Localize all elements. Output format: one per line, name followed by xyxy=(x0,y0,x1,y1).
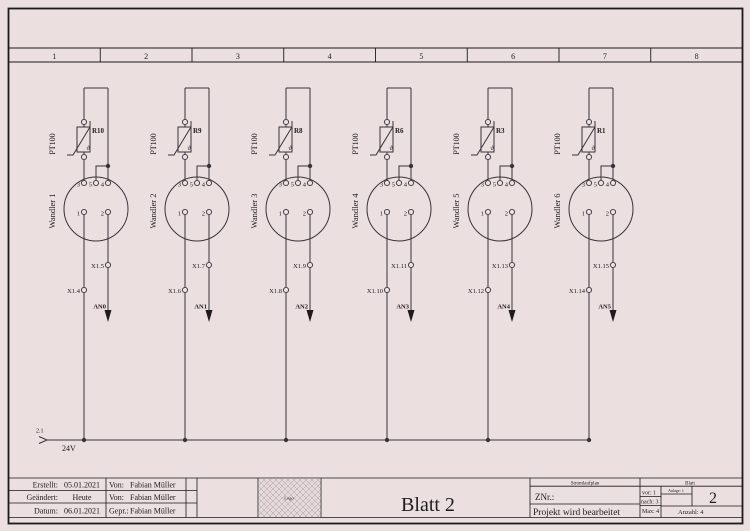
ruler-cell: 4 xyxy=(328,52,332,61)
converter-symbol[interactable] xyxy=(367,177,431,241)
terminal-clamp[interactable] xyxy=(509,262,514,267)
connection-node[interactable] xyxy=(586,119,591,124)
row-by-label: Von: xyxy=(109,481,124,490)
junction-dot xyxy=(207,164,211,168)
anlage-note: Anlage: 1 xyxy=(668,488,684,493)
channel-6: PT100Wandler 6R1ϑ35412X1.14X1.15AN5 xyxy=(552,88,633,442)
terminal-clamp[interactable] xyxy=(586,287,591,292)
title-block-row: Geändert:HeuteVon:Fabian Müller xyxy=(26,493,175,502)
connection-node[interactable] xyxy=(586,154,591,159)
converter-terminal[interactable] xyxy=(105,209,110,214)
terminal-number: 1 xyxy=(380,211,383,218)
row-value: Heute xyxy=(72,493,92,502)
converter-symbol[interactable] xyxy=(468,177,532,241)
pt100-label: PT100 xyxy=(149,133,158,154)
terminal-clamp[interactable] xyxy=(182,287,187,292)
sheet-count: Anzahl: 4 xyxy=(678,509,704,516)
converter-terminal[interactable] xyxy=(182,180,187,185)
resistor-label: R3 xyxy=(496,127,505,135)
theta-symbol: ϑ xyxy=(491,146,494,152)
terminal-clamp[interactable] xyxy=(610,262,615,267)
terminal-number: 2 xyxy=(505,211,508,218)
terminal-number: 5 xyxy=(392,182,395,189)
sheet-title: Blatt 2 xyxy=(401,494,455,516)
resistor-label: R9 xyxy=(193,127,202,135)
pt100-label: PT100 xyxy=(48,133,57,154)
row-by-value: Fabian Müller xyxy=(130,493,176,502)
terminal-number: 3 xyxy=(77,182,80,189)
resistor-label: R8 xyxy=(294,127,303,135)
ruler-cell: 7 xyxy=(603,52,607,61)
column-ruler xyxy=(9,48,743,62)
project-status: Projekt wird bearbeitet xyxy=(533,508,620,518)
logo-text: Logo xyxy=(284,496,294,501)
converter-symbol[interactable] xyxy=(569,177,633,241)
converter-terminal[interactable] xyxy=(509,180,514,185)
converter-terminal[interactable] xyxy=(396,180,401,185)
resistor-label: R1 xyxy=(597,127,606,135)
converter-terminal[interactable] xyxy=(81,180,86,185)
znr-label: ZNr.: xyxy=(535,492,554,502)
theta-symbol: ϑ xyxy=(289,146,292,152)
junction-dot xyxy=(308,164,312,168)
converter-label: Wandler 4 xyxy=(350,193,360,229)
converter-terminal[interactable] xyxy=(586,209,591,214)
output-label: AN5 xyxy=(598,304,611,311)
converter-terminal[interactable] xyxy=(307,180,312,185)
output-label: AN2 xyxy=(295,304,308,311)
row-label: Geändert: xyxy=(26,493,58,502)
channel-3: PT100Wandler 3R8ϑ35412X1.8X1.9AN2 xyxy=(249,88,330,442)
converter-terminal[interactable] xyxy=(194,180,199,185)
terminal-number: 1 xyxy=(279,211,282,218)
output-label: AN4 xyxy=(497,304,510,311)
converter-label: Wandler 3 xyxy=(249,194,259,229)
terminal-clamp[interactable] xyxy=(307,262,312,267)
terminal-number: 3 xyxy=(380,182,383,189)
connection-node[interactable] xyxy=(283,154,288,159)
output-label: AN1 xyxy=(194,304,207,311)
converter-terminal[interactable] xyxy=(509,209,514,214)
terminal-number: 1 xyxy=(77,211,80,218)
pt100-label: PT100 xyxy=(452,133,461,154)
output-label: AN0 xyxy=(93,304,106,311)
row-by-label: Von: xyxy=(109,493,124,502)
converter-terminal[interactable] xyxy=(307,209,312,214)
row-label: Datum: xyxy=(34,507,58,516)
bus-reference-label: 2.1 xyxy=(36,429,44,435)
clamp-label: X1.9 xyxy=(293,263,306,270)
converter-terminal[interactable] xyxy=(384,180,389,185)
connection-node[interactable] xyxy=(384,119,389,124)
theta-symbol: ϑ xyxy=(188,146,191,152)
junction-dot xyxy=(611,164,615,168)
terminal-number: 2 xyxy=(303,211,306,218)
clamp-label: X1.11 xyxy=(391,263,407,270)
converter-symbol[interactable] xyxy=(165,177,229,241)
converter-terminal[interactable] xyxy=(384,209,389,214)
resistor-label: R10 xyxy=(92,127,105,135)
converter-terminal[interactable] xyxy=(182,209,187,214)
converter-terminal[interactable] xyxy=(586,180,591,185)
resistor-label: R6 xyxy=(395,127,404,135)
connection-node[interactable] xyxy=(182,154,187,159)
clamp-label: X1.15 xyxy=(593,263,609,270)
clamp-label: X1.5 xyxy=(91,263,104,270)
converter-terminal[interactable] xyxy=(283,209,288,214)
analog-output-arrow-icon[interactable] xyxy=(408,310,415,322)
output-label: AN3 xyxy=(396,304,409,311)
title-block-row: Datum:06.01.2021Gepr.:Fabian Müller xyxy=(34,507,176,516)
converter-terminal[interactable] xyxy=(485,180,490,185)
junction-dot xyxy=(106,164,110,168)
converter-terminal[interactable] xyxy=(206,180,211,185)
terminal-clamp[interactable] xyxy=(408,262,413,267)
doc-type-header: Stromlaufplan xyxy=(571,481,600,486)
converter-terminal[interactable] xyxy=(610,209,615,214)
channel-5: PT100Wandler 5R3ϑ35412X1.12X1.13AN4 xyxy=(451,88,532,442)
terminal-number: 5 xyxy=(89,182,92,189)
converter-terminal[interactable] xyxy=(598,180,603,185)
connection-node[interactable] xyxy=(283,119,288,124)
converter-label: Wandler 2 xyxy=(148,194,158,229)
bus-voltage-label: 24V xyxy=(62,444,76,453)
terminal-number: 5 xyxy=(594,182,597,189)
converter-terminal[interactable] xyxy=(206,209,211,214)
clamp-label: X1.10 xyxy=(367,288,383,295)
theta-symbol: ϑ xyxy=(390,146,393,152)
connection-node[interactable] xyxy=(81,119,86,124)
terminal-number: 3 xyxy=(279,182,282,189)
pt100-label: PT100 xyxy=(351,133,360,154)
clamp-label: X1.4 xyxy=(67,288,81,295)
sheet-number: 2 xyxy=(709,490,717,507)
clamp-label: X1.14 xyxy=(569,288,586,295)
sheet-next: nach: 3 xyxy=(641,500,659,506)
terminal-number: 3 xyxy=(582,182,585,189)
channel-2: PT100Wandler 2R9ϑ35412X1.6X1.7AN1 xyxy=(148,88,229,442)
converter-terminal[interactable] xyxy=(610,180,615,185)
analog-output-arrow-icon[interactable] xyxy=(509,310,516,322)
connection-node[interactable] xyxy=(182,119,187,124)
analog-output-arrow-icon[interactable] xyxy=(307,310,314,322)
terminal-number: 2 xyxy=(202,211,205,218)
converter-label: Wandler 6 xyxy=(552,194,562,229)
ruler-cell: 1 xyxy=(52,52,56,61)
clamp-label: X1.13 xyxy=(492,263,508,270)
converter-terminal[interactable] xyxy=(105,180,110,185)
terminal-number: 5 xyxy=(291,182,294,189)
ruler-cell: 8 xyxy=(695,52,699,61)
title-block-left-table: Erstellt:05.01.2021Von:Fabian MüllerGeän… xyxy=(26,481,175,516)
terminal-number: 2 xyxy=(101,211,104,218)
terminal-number: 5 xyxy=(493,182,496,189)
terminal-clamp[interactable] xyxy=(384,287,389,292)
terminal-number: 1 xyxy=(582,211,585,218)
analog-output-arrow-icon[interactable] xyxy=(105,310,112,322)
sheet-reference-connector-icon[interactable] xyxy=(39,437,47,444)
terminal-number: 2 xyxy=(404,211,407,218)
converter-label: Wandler 5 xyxy=(451,194,461,229)
converter-terminal[interactable] xyxy=(295,180,300,185)
channel-4: PT100Wandler 4R6ϑ35412X1.10X1.11AN3 xyxy=(350,88,431,442)
sheet-prev: vor: 1 xyxy=(642,491,656,497)
converter-terminal[interactable] xyxy=(497,180,502,185)
clamp-label: X1.8 xyxy=(269,288,282,295)
terminal-clamp[interactable] xyxy=(283,287,288,292)
sheet-max: Max: 4 xyxy=(642,509,659,515)
terminal-clamp[interactable] xyxy=(81,287,86,292)
converter-label: Wandler 1 xyxy=(47,194,57,229)
clamp-label: X1.12 xyxy=(468,288,484,295)
ruler-cell: 6 xyxy=(511,52,515,61)
clamp-label: X1.7 xyxy=(192,263,206,270)
channels-group: PT100Wandler 1R10ϑ35412X1.4X1.5AN0PT100W… xyxy=(47,88,633,442)
analog-output-arrow-icon[interactable] xyxy=(610,310,617,322)
terminal-clamp[interactable] xyxy=(105,262,110,267)
clamp-label: X1.6 xyxy=(168,288,182,295)
ruler-cell: 5 xyxy=(419,52,423,61)
ruler-cell: 2 xyxy=(144,52,148,61)
schematic-canvas: 12345678 PT100Wandler 1R10ϑ35412X1.4X1.5… xyxy=(0,0,750,531)
row-by-value: Fabian Müller xyxy=(130,507,176,516)
row-by-label: Gepr.: xyxy=(109,507,129,516)
ruler-cell: 3 xyxy=(236,52,240,61)
row-label: Erstellt: xyxy=(33,481,58,490)
terminal-number: 1 xyxy=(481,211,484,218)
pt100-label: PT100 xyxy=(250,133,259,154)
connection-node[interactable] xyxy=(384,154,389,159)
title-block-row: Erstellt:05.01.2021Von:Fabian Müller xyxy=(33,481,176,490)
blatt-header: Blatt xyxy=(685,481,695,486)
analog-output-arrow-icon[interactable] xyxy=(206,310,213,322)
converter-terminal[interactable] xyxy=(81,209,86,214)
schematic-sheet: 12345678 PT100Wandler 1R10ϑ35412X1.4X1.5… xyxy=(0,0,750,531)
theta-symbol: ϑ xyxy=(592,146,595,152)
junction-dot xyxy=(510,164,514,168)
connection-node[interactable] xyxy=(81,154,86,159)
converter-symbol[interactable] xyxy=(64,177,128,241)
row-value: 06.01.2021 xyxy=(64,507,100,516)
converter-symbol[interactable] xyxy=(266,177,330,241)
row-by-value: Fabian Müller xyxy=(130,481,176,490)
converter-terminal[interactable] xyxy=(93,180,98,185)
junction-dot xyxy=(409,164,413,168)
supply-bus: 2.1 24V xyxy=(36,429,589,454)
theta-symbol: ϑ xyxy=(87,146,90,152)
connection-node[interactable] xyxy=(485,119,490,124)
terminal-number: 2 xyxy=(606,211,609,218)
converter-terminal[interactable] xyxy=(408,180,413,185)
converter-terminal[interactable] xyxy=(485,209,490,214)
row-value: 05.01.2021 xyxy=(64,481,100,490)
terminal-number: 1 xyxy=(178,211,181,218)
page-border xyxy=(9,9,743,524)
converter-terminal[interactable] xyxy=(408,209,413,214)
converter-terminal[interactable] xyxy=(283,180,288,185)
pt100-label: PT100 xyxy=(553,133,562,154)
channel-1: PT100Wandler 1R10ϑ35412X1.4X1.5AN0 xyxy=(47,88,128,442)
terminal-number: 3 xyxy=(178,182,181,189)
terminal-clamp[interactable] xyxy=(485,287,490,292)
connection-node[interactable] xyxy=(485,154,490,159)
terminal-number: 3 xyxy=(481,182,484,189)
terminal-number: 5 xyxy=(190,182,193,189)
terminal-clamp[interactable] xyxy=(206,262,211,267)
